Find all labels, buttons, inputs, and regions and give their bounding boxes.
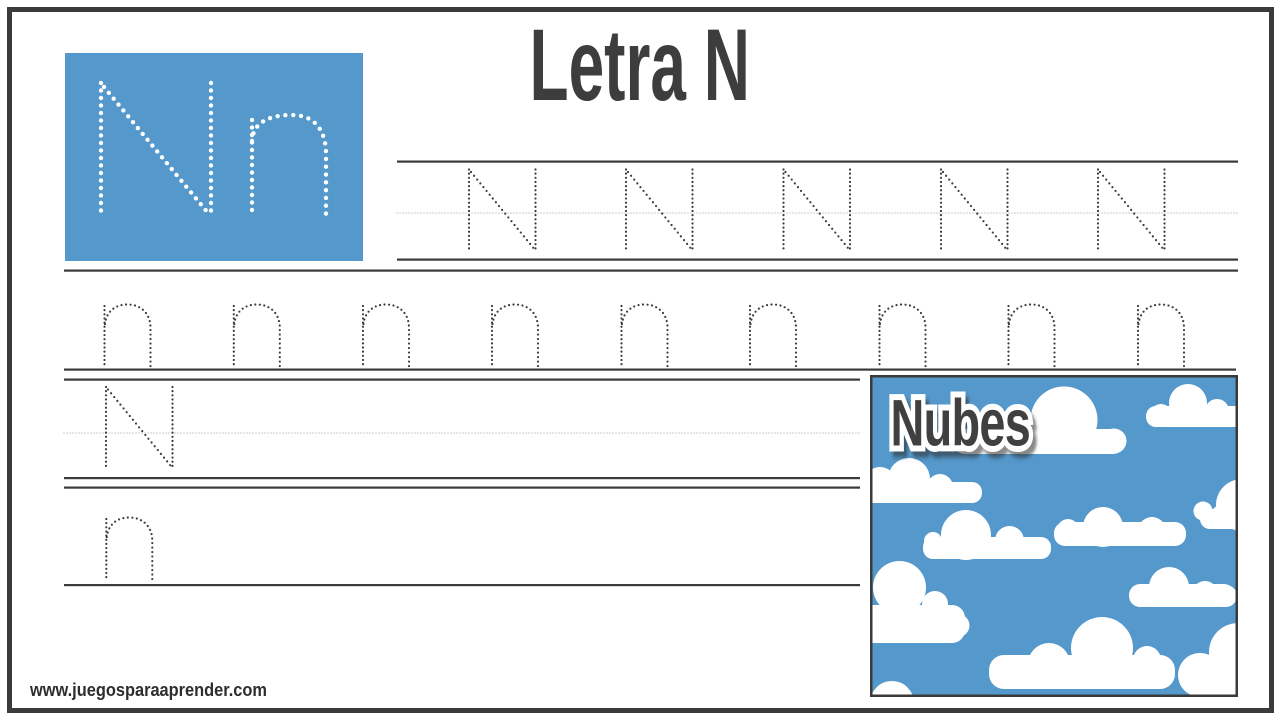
svg-text:Nubes: Nubes: [891, 387, 1031, 461]
